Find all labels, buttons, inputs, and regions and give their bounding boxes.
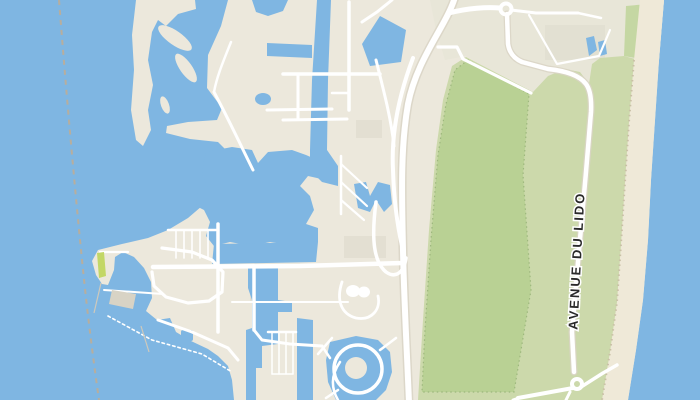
building-block (356, 120, 382, 138)
pier-comb-north (168, 230, 216, 258)
map-canvas[interactable]: AVENUE DU LIDO (0, 0, 700, 400)
canal-west-arm (267, 43, 312, 58)
pool-deck (346, 285, 360, 297)
building-block (545, 25, 605, 60)
south-canal-2 (297, 318, 313, 400)
lagoon-island (345, 357, 367, 379)
street (283, 119, 347, 120)
basin-pier-dock (212, 242, 318, 264)
pool-deck (358, 287, 370, 298)
small-pond (255, 93, 271, 105)
building-block (344, 236, 386, 258)
